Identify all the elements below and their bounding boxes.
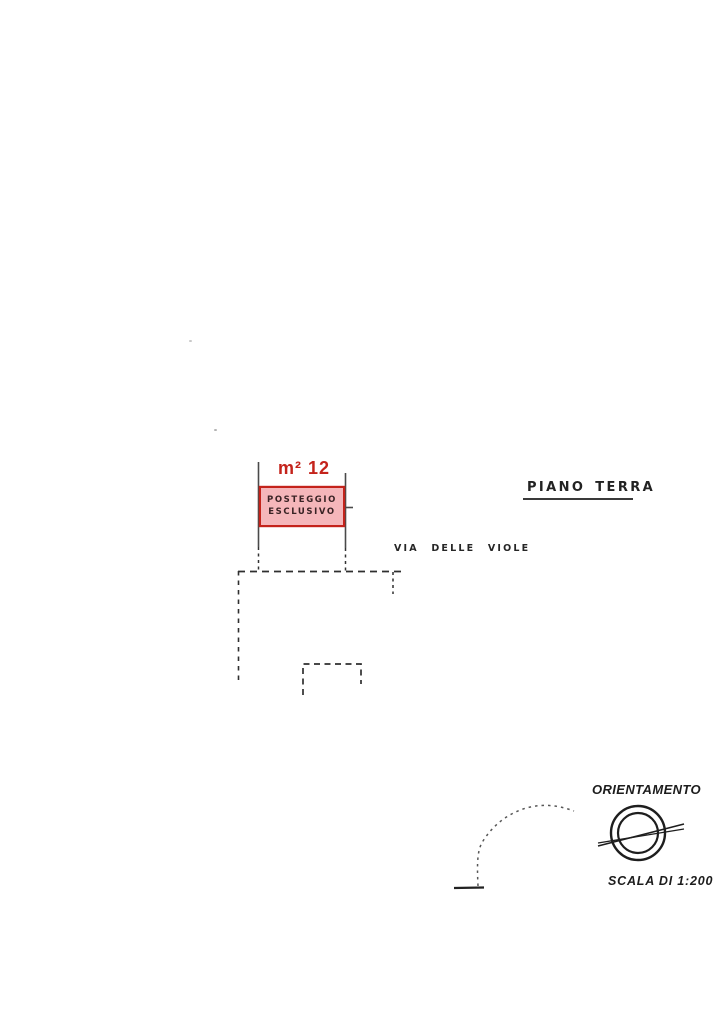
curb-line — [454, 888, 484, 889]
inner-structure-dashed — [303, 664, 361, 695]
plan-linework — [0, 0, 724, 1024]
scan-speck — [214, 429, 217, 431]
scan-speck — [189, 340, 192, 342]
parking-label-line1: POSTEGGIO — [267, 496, 337, 505]
scale-label: SCALA DI 1:200 — [608, 874, 713, 888]
planimetria-page: m² 12 POSTEGGIO ESCLUSIVO VIA DELLE VIOL… — [0, 0, 724, 1024]
compass-icon — [598, 806, 684, 860]
road-edge-arc — [478, 805, 574, 886]
area-label: m² 12 — [278, 458, 330, 479]
parking-space-box: POSTEGGIO ESCLUSIVO — [259, 486, 345, 527]
floor-title: PIANO TERRA — [523, 480, 633, 500]
street-label: VIA DELLE VIOLE — [394, 543, 530, 554]
parking-label-line2: ESCLUSIVO — [268, 508, 336, 517]
orientation-title: ORIENTAMENTO — [592, 782, 701, 797]
